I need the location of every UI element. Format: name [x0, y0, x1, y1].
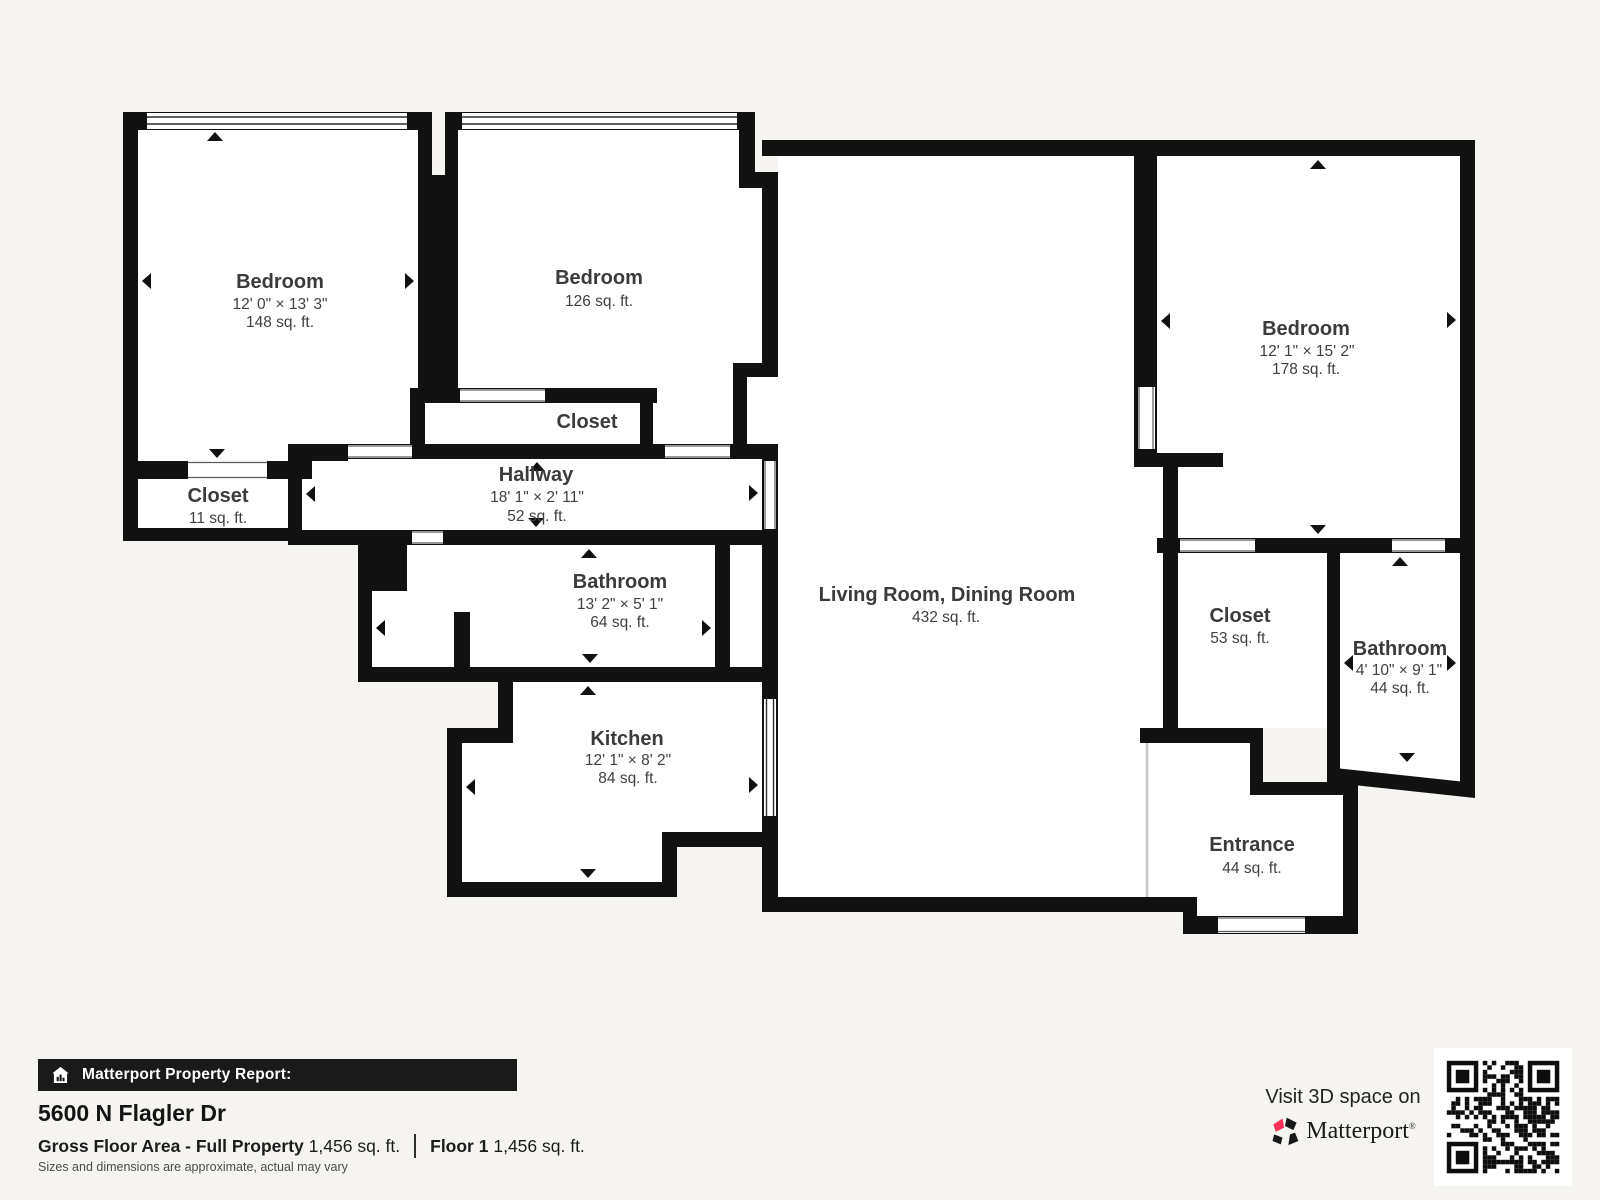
- wall-segment: [1150, 453, 1223, 467]
- floor-plan: Bedroom 12' 0" × 13' 3" 148 sq. ft. Bedr…: [0, 0, 1600, 1200]
- room-fill-bathroom-middle: [372, 545, 715, 667]
- gross-floor-area-label: Gross Floor Area - Full Property: [38, 1136, 304, 1156]
- room-label-bedroom-tl-dims: 12' 0" × 13' 3": [233, 296, 328, 313]
- room-label-kitchen-name: Kitchen: [590, 728, 663, 750]
- room-label-hallway-dims: 18' 1" × 2' 11": [490, 489, 584, 506]
- room-fill: [747, 375, 762, 445]
- room-label-bedroom-right-area: 178 sq. ft.: [1272, 361, 1340, 378]
- wall-segment: [640, 388, 653, 445]
- door-opening: [665, 445, 730, 458]
- floor-value: 1,456 sq. ft.: [493, 1136, 584, 1156]
- room-label-bathroom-middle-area: 64 sq. ft.: [590, 614, 649, 631]
- wall-segment: [1163, 553, 1178, 728]
- room-fill-vestibule: [653, 388, 733, 445]
- room-label-kitchen-area: 84 sq. ft.: [598, 770, 657, 787]
- room-label-closet-left-area: 11 sq. ft.: [189, 510, 247, 527]
- wall-segment: [739, 172, 778, 188]
- wall-segment: [1134, 140, 1475, 156]
- report-bar-label: Matterport Property Report:: [82, 1066, 292, 1084]
- qr-code: [1434, 1048, 1572, 1186]
- wall-segment: [358, 575, 372, 682]
- door-opening: [1218, 917, 1305, 933]
- room-label-bedroom-tl-name: Bedroom: [236, 271, 324, 293]
- wall-segment: [1327, 538, 1340, 782]
- wall-segment: [410, 388, 425, 459]
- room-label-entrance-area: 44 sq. ft.: [1222, 860, 1281, 877]
- wall-segment: [762, 188, 778, 367]
- wall-segment: [418, 188, 458, 403]
- room-label-living-name: Living Room, Dining Room: [819, 584, 1076, 606]
- room-label-hallway-name: Hallway: [499, 464, 574, 486]
- room-label-closet-middle-name: Closet: [556, 411, 617, 433]
- disclaimer-text: Sizes and dimensions are approximate, ac…: [38, 1160, 348, 1174]
- wall-segment: [358, 667, 778, 682]
- wall-segment: [762, 140, 1157, 156]
- door-opening: [764, 461, 776, 529]
- room-label-bedroom-right-dims: 12' 1" × 15' 2": [1260, 343, 1355, 360]
- floor-area-metrics: Gross Floor Area - Full Property 1,456 s…: [38, 1134, 585, 1158]
- wall-segment: [447, 728, 513, 743]
- metrics-separator: [414, 1134, 416, 1158]
- door-opening: [348, 445, 412, 458]
- room-label-bathroom-middle-name: Bathroom: [573, 571, 667, 593]
- wall-segment: [1140, 728, 1263, 743]
- room-label-bathroom-right-name: Bathroom: [1353, 638, 1447, 660]
- wall-segment: [447, 743, 462, 897]
- wall-segment: [739, 112, 755, 178]
- room-label-closet-right-area: 53 sq. ft.: [1210, 630, 1269, 647]
- gross-floor-area-value: 1,456 sq. ft.: [309, 1136, 400, 1156]
- matterport-pinwheel-icon: [1270, 1116, 1300, 1146]
- property-report-page: Bedroom 12' 0" × 13' 3" 148 sq. ft. Bedr…: [0, 0, 1600, 1200]
- wall-segment: [762, 897, 1197, 912]
- room-fill-living-room: [778, 156, 1134, 897]
- property-address: 5600 N Flagler Dr: [38, 1100, 226, 1127]
- room-fill: [739, 180, 762, 367]
- room-fill-entrance: [1147, 743, 1343, 916]
- wall-segment: [715, 530, 730, 667]
- registered-mark: ®: [1409, 1121, 1416, 1131]
- room-label-bedroom-right-name: Bedroom: [1262, 318, 1350, 340]
- room-label-bedroom-tl-area: 148 sq. ft.: [246, 314, 314, 331]
- house-report-icon: [50, 1065, 71, 1086]
- room-fill: [1134, 743, 1147, 897]
- wall-segment: [445, 112, 458, 190]
- door-opening: [1392, 539, 1445, 552]
- room-label-bedroom-tm-area: 126 sq. ft.: [565, 293, 633, 310]
- room-label-bedroom-tm-name: Bedroom: [555, 267, 643, 289]
- door-opening: [460, 389, 545, 402]
- window-bedroom-top-middle: [462, 113, 737, 129]
- room-fill: [730, 545, 762, 667]
- room-label-bathroom-middle-dims: 13' 2" × 5' 1": [577, 596, 663, 613]
- wall-segment: [447, 882, 677, 897]
- wall-segment: [662, 832, 778, 847]
- room-fill-bedroom-top-middle: [458, 128, 739, 390]
- room-label-closet-left-name: Closet: [187, 485, 248, 507]
- door-opening: [188, 461, 267, 479]
- wall-segment: [454, 612, 470, 667]
- room-label-bathroom-right-dims: 4' 10" × 9' 1": [1356, 662, 1442, 679]
- wall-segment: [1460, 140, 1475, 790]
- door-opening: [1180, 539, 1255, 552]
- room-label-entrance-name: Entrance: [1209, 834, 1295, 856]
- visit-text: Visit 3D space on: [1248, 1086, 1438, 1109]
- room-fill: [762, 367, 778, 447]
- wall-segment: [123, 528, 302, 541]
- room-label-hallway-area: 52 sq. ft.: [507, 508, 566, 525]
- floor-label: Floor 1: [430, 1136, 488, 1156]
- report-title-bar: Matterport Property Report:: [38, 1059, 517, 1091]
- wall-segment: [1250, 728, 1263, 795]
- visit-3d-promo: Visit 3D space on Matterport®: [1248, 1086, 1438, 1146]
- wall-segment: [1263, 782, 1343, 795]
- brand-name: Matterport: [1306, 1118, 1409, 1144]
- room-label-closet-right-name: Closet: [1209, 605, 1270, 627]
- wall-segment: [1343, 782, 1358, 934]
- window-bedroom-top-left: [147, 113, 407, 129]
- room-fill-bedroom-top-left: [138, 128, 418, 461]
- room-label-bathroom-right-area: 44 sq. ft.: [1370, 680, 1429, 697]
- door-opening: [412, 531, 443, 544]
- room-label-living-area: 432 sq. ft.: [912, 609, 980, 626]
- room-fills: [138, 128, 1460, 916]
- room-label-kitchen-dims: 12' 1" × 8' 2": [585, 752, 671, 769]
